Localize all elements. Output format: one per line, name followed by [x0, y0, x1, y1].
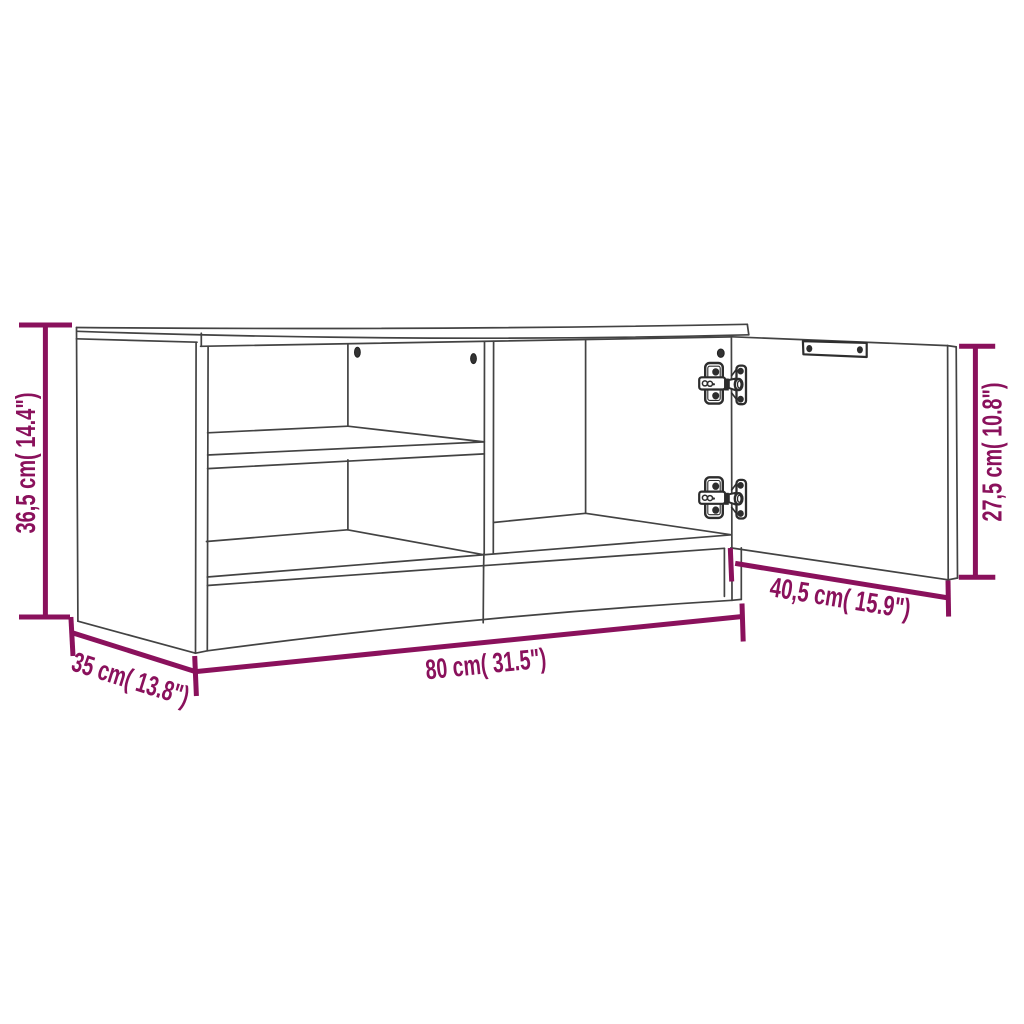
- svg-text:36,5 cm( 14.4"): 36,5 cm( 14.4"): [10, 393, 41, 534]
- svg-text:27,5 cm( 10.8"): 27,5 cm( 10.8"): [976, 383, 1007, 522]
